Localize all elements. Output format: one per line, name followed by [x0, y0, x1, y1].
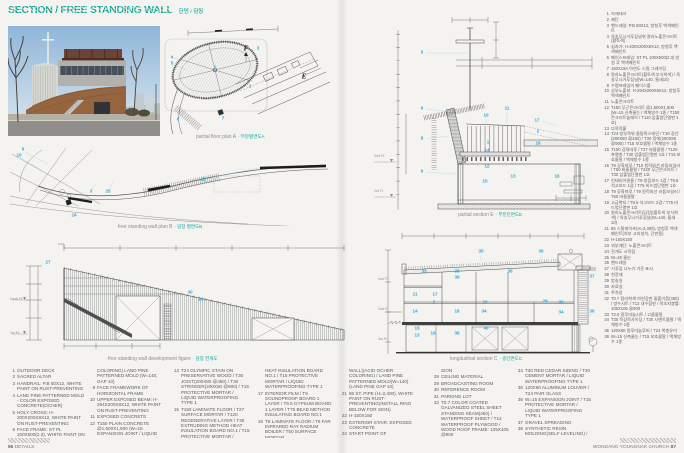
note-item: 7 150X19A 아연도 스틸 그레이팅 [601, 67, 681, 72]
note-number [88, 368, 95, 384]
page-number-left: 86 [8, 445, 13, 450]
section-c-callouts: 3536333838383711172262930141634343615131… [378, 228, 602, 366]
wall-development-figure: free standing wall development figure· 담… [8, 238, 348, 366]
section-letter: E [302, 74, 307, 81]
note-number: 11 [88, 414, 95, 419]
footer-right-label: WONDANG YOUNGNAK CHURCH [593, 445, 669, 450]
callout-number: 33 [421, 270, 426, 275]
note-text: SYNTHETIC RESIN MOLDING(SELF-LEVELING) /… [525, 426, 594, 438]
callout-number: 34 [558, 311, 563, 316]
callout-number: 10 [483, 114, 488, 119]
callout-number: 38 [507, 270, 512, 275]
footer-left: 86 DETAILS [8, 438, 50, 450]
callout-number: 5 [171, 62, 174, 67]
note-text: T30 적삼목사이딩 / T30 시멘트몰탈 / 액체방수 1종 [611, 318, 681, 328]
callout-number: 1 [214, 66, 217, 71]
footer-left-label: DETAILS [15, 445, 35, 450]
note-item: 29 BROADCASTING ROOM [432, 381, 510, 386]
callout-number: 16 [554, 175, 559, 180]
note-text: W=15 EXPANSION JOINT / T15 PROTECTIVE MO… [525, 397, 594, 419]
note-text: T9 LAMINATE FLOOR / T9 FAR INFRARED RAY … [265, 419, 334, 438]
note-item: 5 십자가: H-200X200X8X12, 방청후 백색페인트 [601, 45, 681, 55]
callout-number: 12 [484, 165, 489, 170]
callout-number: 37 [589, 275, 594, 280]
note-number: 24 [601, 250, 609, 255]
note-text: FACE FRAME: ST PL 100X500(2.3), WHITE PA… [17, 427, 86, 438]
note-item: 14 T24 OLYMPIC STAIN ON PRESERVATIVE WOO… [172, 368, 250, 406]
note-number: 15 [172, 407, 179, 438]
note-item: 23 EXTERIOR STAIR: EXPOSED CONCRETE [340, 420, 418, 431]
note-number [256, 368, 263, 390]
note-text: 86 스틸파이프(H=2,400), 방청후 백색페인트(하부 고리설치, 간판… [611, 227, 681, 237]
note-number: 29 [432, 381, 439, 386]
note-item: 2 SACRED ALTAR [8, 374, 86, 379]
note-number: 34 [516, 368, 523, 384]
note-item: 16 T9 강화마루 / T10 원적외선 라듐보일러 / T50 바름몰탈 /… [601, 164, 681, 178]
note-item: 3 HANDRAIL: P.B 50X12, WHITE PAINT ON RU… [8, 381, 86, 392]
note-text: GRAVEL SPREADING [525, 420, 594, 425]
note-number [340, 368, 347, 390]
note-text: HEAT INSULATION BOARD NO.1 / T15 PROTECT… [265, 368, 334, 390]
page-number-right: 87 [671, 445, 676, 450]
note-number: 34 [601, 318, 609, 328]
note-number: 32 [601, 297, 609, 311]
callout-number: 36 [589, 310, 594, 315]
note-number: 24 [340, 431, 347, 438]
partial-floor-plan-a: partial floor plan A· 부분평면도A F3E451267 [160, 26, 336, 148]
note-item: 34 T30 적삼목사이딩 / T30 시멘트몰탈 / 액체방수 1종 [601, 318, 681, 328]
callout-number: 13 [510, 175, 515, 180]
callout-number: 9 [421, 170, 424, 175]
level-label: 2nd Fl. [378, 308, 389, 312]
callout-number: 18 [535, 142, 540, 147]
note-text: T150 LAMINATE FLOOR / T27 SURFACE MORTAR… [181, 407, 250, 438]
footer-right-hatch [620, 438, 676, 443]
footer-left-hatch [8, 438, 50, 443]
note-number: 8 [601, 73, 609, 83]
note-text: 십자가: H-200X200X8X12, 방청후 백색페인트 [611, 45, 681, 55]
callout-number: 7 [222, 117, 225, 122]
korean-notes-panel: 1 목재데크 2 제단 3 핸드레일: P.B 50X12, 방청후 백색페인트… [601, 12, 681, 344]
note-number: 22 [340, 413, 347, 418]
note-number: 3 [8, 381, 15, 392]
note-number: 14 [601, 132, 609, 146]
development-callouts: 273026Deck FL1st FL [8, 238, 348, 366]
note-item: 6 FACE FRAME: ST PL 100X500(2.3), WHITE … [8, 427, 86, 438]
callout-number: 29 [542, 300, 547, 305]
callout-number: 30 [187, 291, 192, 296]
note-item: 18 T9 LAMINATE FLOOR / T9 FAR INFRARED R… [256, 419, 334, 438]
page-header: SECTION / FREE STANDING WALL 단면 / 담장 [8, 4, 203, 16]
note-number: 2 [8, 374, 15, 379]
note-item: 36 W=15 신축줄눈 / T15 보호몰탈 / 액체방수 1종 [601, 335, 681, 344]
note-text: W=15 신축줄눈 / T15 보호몰탈 / 액체방수 1종 [611, 335, 681, 344]
notes-column-2: COLORING) LAND PINE PATTERNED MOLD (W=14… [88, 368, 166, 438]
note-number: 17 [256, 391, 263, 418]
note-text: T150 강화마루 / T27 바름몰탈 / T120 축열층 / T30 압출… [611, 148, 681, 162]
note-number: 18 [256, 419, 263, 438]
note-text: T150 무근콘크리트 @1,500X1,500 (W=15 신축줄눈 / 액체… [611, 106, 681, 125]
note-text: T24 방부목위 올림픽스테인 / T30 장선(200X80 @450) / … [611, 132, 681, 146]
callout-number: 3 [90, 190, 93, 195]
note-text: 86 ST. PIPE (H=2,400), WHITE PAINT ON RU… [349, 391, 418, 413]
note-text: T30 RED CEDAR SIDING / T30 CEMENT MORTAR… [525, 368, 594, 384]
callout-number: 19 [430, 332, 435, 337]
note-number: 4 [601, 35, 609, 45]
note-item: 14 T24 방부목위 올림픽스테인 / T30 장선(200X80 @450)… [601, 132, 681, 146]
note-text: T24 OLYMPIC STAIN ON PRESERVATIVE WOOD /… [181, 368, 250, 406]
note-item: 32 T0.7 COLOR COATED GALVANIZED STEEL SH… [432, 400, 510, 438]
note-text: HOLY CROSS: H-200X200X8X12, WHITE PAINT … [17, 410, 86, 426]
note-item: 15 T150 강화마루 / T27 바름몰탈 / T120 축열층 / T30… [601, 148, 681, 162]
note-text: T0.7 COLOR COATED GALVANIZED STEEL SHEET… [441, 400, 510, 438]
note-item: 17 INTERIOR FILM / T9 SOUNDPROOF BOARD 1… [256, 391, 334, 418]
note-text: HANDRAIL: P.B 50X12, WHITE PAINT ON RUST… [17, 381, 86, 392]
note-number: 38 [516, 426, 523, 438]
note-item: 9 FACE FRAMEWORK OF HORIZONTAL FRAME [88, 385, 166, 396]
note-number: 31 [432, 394, 439, 399]
note-item: 1 OUTDOOR DECK [8, 368, 86, 373]
callout-number: 1 [487, 141, 490, 146]
note-item: 10 UPPER EXPOSED BEAM: H-294X200X8X12, W… [88, 397, 166, 413]
callout-number: 2 [537, 130, 540, 135]
note-text: OUTDOOR DECK [17, 368, 86, 373]
note-text: WALL)(ACID OCHER COLORING) / LAND PINE P… [349, 368, 418, 390]
callout-number: 4 [171, 56, 174, 61]
note-text: BROADCASTING ROOM [441, 381, 510, 386]
note-number: 37 [516, 420, 523, 425]
note-item: 6 페이스프레임: ST PL 100X500(2.3) 방청 후 백색페인트 [601, 56, 681, 66]
note-number: 12 [601, 106, 609, 125]
note-text: 핸드레일: P.B 50X12, 방청후 백색페인트 [611, 24, 681, 34]
note-number: 7 [601, 67, 609, 72]
note-number: 10 [601, 89, 609, 99]
callout-number: 11 [505, 107, 510, 112]
note-text: SACRED ALTAR [17, 374, 86, 379]
note-item: 37 GRAVEL SPREADING [516, 420, 594, 425]
note-item: 31 PARKING LOT [432, 394, 510, 399]
note-text: EXPOSED CONCRETE [97, 414, 166, 419]
plan-b-callouts: 9102432522 [8, 146, 340, 236]
level-label: 1st FL [10, 332, 20, 336]
note-number [432, 368, 439, 373]
note-text: UPPER EXPOSED BEAM: H-294X200X8X12, WHIT… [97, 397, 166, 413]
callout-number: 5 [421, 51, 424, 56]
callout-number: 36 [454, 332, 459, 337]
callout-number: 35 [478, 250, 483, 255]
note-text: T9 강화마루 / T9 원적외선 라듐보일러 / T50 바름몰탈 [611, 190, 681, 200]
notes-column-3: 14 T24 OLYMPIC STAIN ON PRESERVATIVE WOO… [172, 368, 250, 438]
note-text: EXTERIOR STAIR: EXPOSED CONCRETE [349, 420, 418, 431]
callout-number: 30 [558, 301, 563, 306]
callout-number: 16 [454, 310, 459, 315]
church-photo-graphic [8, 26, 160, 136]
note-number: 30 [432, 387, 439, 392]
note-item: COLORING) LAND PINE PATTERNED MOLD (W=14… [88, 368, 166, 384]
level-label: 1st Fl. [378, 338, 388, 342]
note-number: 19 [601, 201, 609, 211]
page-subtitle-korean: 단면 / 담장 [179, 7, 204, 16]
note-item: 12 T150 PLAIN CONCRETE @1,500X1,500 (W=1… [88, 421, 166, 438]
level-label: Deck FL [10, 298, 23, 302]
note-number: 4 [8, 393, 15, 409]
book-spread: SECTION / FREE STANDING WALL 단면 / 담장 [0, 0, 684, 453]
note-number: 9 [88, 385, 95, 396]
note-text: 상부노출보: H-294X200X8X12, 방청후 백색페인트 [611, 89, 681, 99]
callout-number: 2 [433, 301, 436, 306]
note-text: 칼라노출콘크리트(황토색 부식착색) / 육송무늬거푸집널(W=140, 틈새1… [611, 73, 681, 83]
callout-number: 6 [421, 107, 424, 112]
level-label: 2nd Fl. [374, 155, 385, 159]
callout-number: 34 [481, 310, 486, 315]
note-number: 22 [601, 238, 609, 243]
section-e-callouts: 5610118917218114121316152nd Fl.1st Fl. [372, 14, 598, 224]
note-item: 21 86 스틸파이프(H=2,400), 방청후 백색페인트(하부 고리설치,… [601, 227, 681, 237]
note-item: 21 86 ST. PIPE (H=2,400), WHITE PAINT ON… [340, 391, 418, 413]
note-number: 21 [601, 227, 609, 237]
callout-number: 40 [483, 327, 488, 332]
note-text: 목재데크 [611, 12, 681, 17]
note-item: 38 SYNTHETIC RESIN MOLDING(SELF-LEVELING… [516, 426, 594, 438]
note-number: 23 [601, 244, 609, 249]
callout-number: 2 [249, 85, 252, 90]
note-item: 12 T150 무근콘크리트 @1,500X1,500 (W=15 신축줄눈 /… [601, 106, 681, 125]
callout-number: 25 [105, 190, 110, 195]
note-number: 12 [88, 421, 95, 438]
callout-number: 38 [454, 270, 459, 275]
note-text: 전개도 시작점 [611, 250, 681, 255]
note-text: 외부계단: 노출콘크리트 [611, 244, 681, 249]
note-text: PARKING LOT [441, 394, 510, 399]
note-item: 20 칼라노출콘크리트(담장)(황토색 부식착색) / 육송무늬거푸집널(W=1… [601, 211, 681, 225]
notes-column-1: 1 OUTDOOR DECK 2 SACRED ALTAR 3 HANDRAIL… [8, 368, 86, 438]
note-item: 36 W=15 EXPANSION JOINT / T15 PROTECTIVE… [516, 397, 594, 419]
notes-column-5: WALL)(ACID OCHER COLORING) / LAND PINE P… [340, 368, 418, 438]
note-text: LAND PINE PATTERNED MOLD - COLOR EXPOSED… [17, 393, 86, 409]
note-number: 18 [601, 190, 609, 200]
note-item: 22 H-150X150 [340, 413, 418, 418]
note-text: 고급벽지 / T9.5 석고보드 2겹 / T75 비드법단열판 1호 [611, 201, 681, 211]
callout-number: 27 [45, 261, 50, 266]
note-number: 35 [516, 385, 523, 396]
note-text: COLORING) LAND PINE PATTERNED MOLD (W=14… [97, 368, 166, 384]
note-text: T0.7 칼라착색 아연강판 돌출이음(450) / 방수시트 / T12 내수… [611, 297, 681, 311]
note-text: T9 강화마루 / T10 원적외선 라듐보일러 / T50 바름몰탈 / T4… [611, 164, 681, 178]
plan-a-callouts: F3E451267 [160, 26, 336, 148]
note-item: 18 T9 강화마루 / T9 원적외선 라듐보일러 / T50 바름몰탈 [601, 190, 681, 200]
note-number: 20 [601, 211, 609, 225]
note-text: REFERENCE ROOM [441, 387, 510, 392]
note-number: 16 [601, 164, 609, 178]
note-item: 35 120X60 ALUMINUM LOUVER / T24 PAIR GLA… [516, 385, 594, 396]
note-item: 10 상부노출보: H-294X200X8X12, 방청후 백색페인트 [601, 89, 681, 99]
note-number: 23 [340, 420, 347, 431]
note-item: 19 고급벽지 / T9.5 석고보드 2겹 / T75 비드법단열판 1호 [601, 201, 681, 211]
level-label: 1st Fl. [374, 190, 384, 194]
note-text: INTERIOR FILM / T9 SOUNDPROOF BOARD 1 LA… [265, 391, 334, 418]
note-text: FACE FRAMEWORK OF HORIZONTAL FRAME [97, 385, 166, 396]
callout-number: 14 [412, 310, 417, 315]
section-letter: F [244, 46, 249, 53]
note-item: 17 인테리어필름 / T9 방음보드 1겹 / T9.5 석고보드 1겹 / … [601, 179, 681, 189]
note-item: 32 T0.7 칼라착색 아연강판 돌출이음(450) / 방수시트 / T12… [601, 297, 681, 311]
note-number: 5 [601, 45, 609, 55]
callout-number: 26 [198, 298, 203, 303]
callout-number: 10 [16, 154, 21, 159]
callout-number: 6 [177, 118, 180, 123]
note-item: 30 REFERENCE ROOM [432, 387, 510, 392]
callout-number: 3 [257, 47, 260, 52]
notes-column-7: 34 T30 RED CEDAR SIDING / T30 CEMENT MOR… [516, 368, 594, 438]
note-item: 24 전개도 시작점 [601, 250, 681, 255]
callout-number: 8 [421, 137, 424, 142]
callout-number: 13 [414, 334, 419, 339]
notes-column-4: HEAT INSULATION BOARD NO.1 / T15 PROTECT… [256, 368, 334, 438]
note-number: 10 [88, 397, 95, 413]
page-title: SECTION / FREE STANDING WALL [8, 4, 173, 16]
note-number: 6 [601, 56, 609, 66]
note-number: 1 [8, 368, 15, 373]
free-standing-wall-plan-b: free standing wall plan B· 담장 평면도B 91024… [8, 146, 340, 236]
note-item: 8 칼라노출콘크리트(황토색 부식착색) / 육송무늬거푸집널(W=140, 틈… [601, 73, 681, 83]
note-item: 11 EXPOSED CONCRETE [88, 414, 166, 419]
callout-number: 22 [200, 178, 205, 183]
notes-column-6: SION 28 CEILING MATERIAL 29 BROADCASTING… [432, 368, 510, 438]
note-number: 14 [172, 368, 179, 406]
note-item: 34 T30 RED CEDAR SIDING / T30 CEMENT MOR… [516, 368, 594, 384]
callout-number: 15 [414, 327, 419, 332]
note-text: 페이스프레임: ST PL 100X500(2.3) 방청 후 백색페인트 [611, 56, 681, 66]
note-number: 21 [340, 391, 347, 413]
callout-number: 24 [71, 214, 76, 219]
note-item: 4 육송무늬거푸집널위 칼라노출콘크리트(황토색) [601, 35, 681, 45]
note-text: SION [441, 368, 510, 373]
note-text: CEILING MATERIAL [441, 374, 510, 379]
callout-number: 14 [484, 149, 489, 154]
callout-number: 11 [413, 293, 418, 298]
footer-right: WONDANG YOUNGNAK CHURCH 87 [593, 438, 676, 450]
note-text: H-150X150 [349, 413, 418, 418]
note-item: 24 START POINT OF DEVELOPMENT FIGURE [340, 431, 418, 438]
callout-number: 9 [22, 148, 25, 153]
note-item: 5 HOLY CROSS: H-200X200X8X12, WHITE PAIN… [8, 410, 86, 426]
church-photo [8, 26, 160, 136]
callout-number: 15 [482, 180, 487, 185]
note-number: 5 [8, 410, 15, 426]
note-text: START POINT OF DEVELOPMENT FIGURE [349, 431, 418, 438]
partial-section-e: partial section E· 부분단면도E 56101189172181… [372, 14, 598, 224]
callout-number: 38 [454, 276, 459, 281]
note-text: 인테리어필름 / T9 방음보드 1겹 / T9.5 석고보드 1겹 / T75… [611, 179, 681, 189]
callout-number: 17 [534, 119, 539, 124]
note-item: 4 LAND PINE PATTERNED MOLD - COLOR EXPOS… [8, 393, 86, 409]
note-text: 육송무늬거푸집널위 칼라노출콘크리트(황토색) [611, 35, 681, 45]
note-text: H-150X150 [611, 238, 681, 243]
note-item: SION [432, 368, 510, 373]
note-item: WALL)(ACID OCHER COLORING) / LAND PINE P… [340, 368, 418, 390]
note-number: 15 [601, 148, 609, 162]
note-item: 23 외부계단: 노출콘크리트 [601, 244, 681, 249]
callout-number: 36 [538, 250, 543, 255]
callout-number: 17 [432, 293, 437, 298]
note-number: 28 [432, 374, 439, 379]
note-item: 15 T150 LAMINATE FLOOR / T27 SURFACE MOR… [172, 407, 250, 438]
note-item: HEAT INSULATION BOARD NO.1 / T15 PROTECT… [256, 368, 334, 390]
callout-number: 26 [482, 301, 487, 306]
note-text: 120X60 ALUMINUM LOUVER / T24 PAIR GLASS [525, 385, 594, 396]
note-number: 36 [516, 397, 523, 419]
note-number: 17 [601, 179, 609, 189]
note-item: 3 핸드레일: P.B 50X12, 방청후 백색페인트 [601, 24, 681, 34]
note-text: T150 PLAIN CONCRETE @1,500X1,500 (W=15 E… [97, 421, 166, 438]
note-item: 28 CEILING MATERIAL [432, 374, 510, 379]
note-item: 22 H-150X150 [601, 238, 681, 243]
level-label: roof Fl. [378, 278, 389, 282]
note-text: 150X19A 아연도 스틸 그레이팅 [611, 67, 681, 72]
note-text: 칼라노출콘크리트(담장)(황토색 부식착색) / 육송무늬거푸집널(W=140,… [611, 211, 681, 225]
note-number: 3 [601, 24, 609, 34]
note-number: 36 [601, 335, 609, 344]
longitudinal-section-c: longitudinal section C· 종단면도C 3536333838… [378, 228, 602, 366]
note-number: 6 [8, 427, 15, 438]
note-number: 32 [432, 400, 439, 438]
